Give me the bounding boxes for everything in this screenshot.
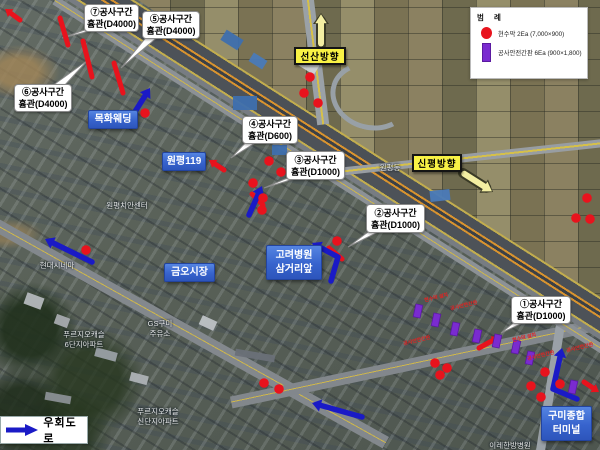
legend-item: 현수막 2Ea (7,000×900) <box>477 27 581 39</box>
banner-dot-marker <box>430 358 440 368</box>
construction-label-tail <box>52 60 88 86</box>
banner-dot-marker <box>257 205 267 215</box>
banner-dot-marker <box>555 379 565 389</box>
construction-zone-map: 원평치안센터현대시네마원평동푸르지오캐슬6단지아파트GS구미주유소푸르지오캐슬신… <box>0 0 600 450</box>
banner-dot-marker <box>526 381 536 391</box>
construction-label-tail <box>121 35 160 68</box>
banner-dot-marker <box>540 367 550 377</box>
red-arrow-marker <box>215 164 224 170</box>
construction-sign-marker <box>450 322 460 336</box>
construction-sign-marker <box>568 380 578 394</box>
legend-item-label: 현수막 2Ea (7,000×900) <box>498 29 564 38</box>
banner-dot-marker <box>248 178 258 188</box>
banner-dot-marker <box>585 214 595 224</box>
banner-dot-marker <box>81 245 91 255</box>
legend-panel: 범 례 현수막 2Ea (7,000×900)공사안전간판 6Ea (900×1… <box>470 7 588 79</box>
construction-label-tail <box>231 140 260 158</box>
banner-dot-marker <box>332 236 342 246</box>
banner-dot-marker <box>571 213 581 223</box>
banner-dot-marker <box>435 370 445 380</box>
construction-sign-marker <box>431 313 441 327</box>
bypass-arrow-icon <box>5 423 38 437</box>
banner-dot-marker <box>264 156 274 166</box>
banner-dot-swatch <box>481 27 492 39</box>
legend-title: 범 례 <box>477 12 581 23</box>
construction-sign-marker <box>472 329 482 343</box>
banner-dot-marker <box>276 167 286 177</box>
banner-dot-marker <box>442 363 452 373</box>
banner-dot-marker <box>305 72 315 82</box>
bypass-label: 우회도로 <box>43 414 87 446</box>
construction-label-tail <box>501 320 529 333</box>
banner-dot-marker <box>299 88 309 98</box>
banner-dot-marker <box>140 108 150 118</box>
banner-dot-marker <box>258 193 268 203</box>
legend-item: 공사안전간판 6Ea (900×1,800) <box>477 43 581 62</box>
red-arrow-marker <box>584 382 593 388</box>
construction-sign-marker <box>492 334 502 348</box>
banner-dot-marker <box>274 384 284 394</box>
legend-items: 현수막 2Ea (7,000×900)공사안전간판 6Ea (900×1,800… <box>477 27 581 62</box>
bypass-label-box: 우회도로 <box>0 416 88 444</box>
blue-route-arrow <box>320 405 362 417</box>
construction-label-tail <box>264 176 304 188</box>
banner-dot-marker <box>582 193 592 203</box>
blue-route-arrow <box>554 348 566 358</box>
red-segment-marker <box>60 18 68 45</box>
red-arrow-marker <box>479 340 493 348</box>
construction-sign-marker <box>511 340 521 354</box>
construction-sign-marker <box>413 304 423 318</box>
legend-item-label: 공사안전간판 6Ea (900×1,800) <box>498 48 582 57</box>
red-arrow-marker <box>11 13 20 20</box>
banner-dot-marker <box>259 378 269 388</box>
red-segment-marker <box>83 41 92 77</box>
safety-sign-swatch <box>482 43 491 62</box>
banner-dot-marker <box>536 392 546 402</box>
construction-sign-marker <box>525 351 535 365</box>
construction-label-tail <box>348 229 384 247</box>
banner-dot-marker <box>313 98 323 108</box>
